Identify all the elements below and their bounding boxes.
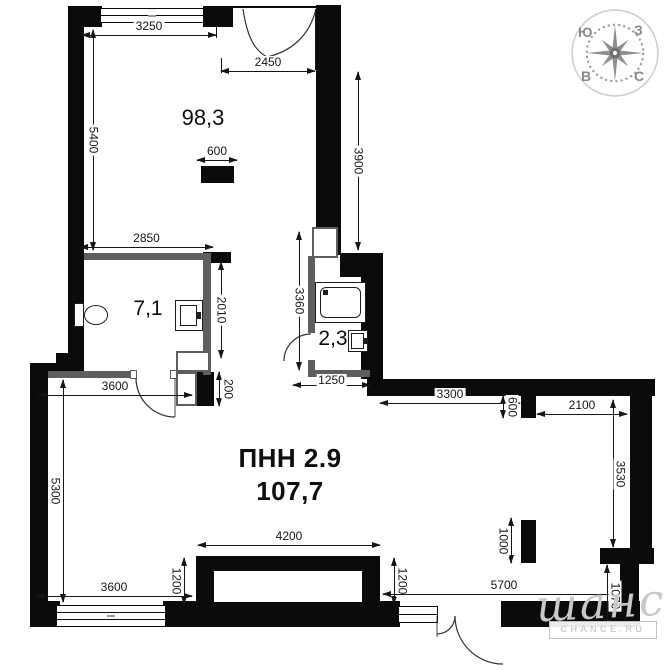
dimension-arrow [382, 591, 391, 597]
dimension-arrow [37, 392, 46, 398]
balcony-interior [214, 571, 362, 602]
niche [176, 351, 210, 372]
dimension-label: 200 [222, 377, 235, 401]
dimension-arrow [81, 32, 90, 38]
room-area-living: 98,3 [163, 105, 243, 131]
compass-letter-west: З [634, 22, 643, 38]
dimension-label: 3900 [352, 146, 365, 177]
dimension-arrow [391, 596, 397, 605]
window [398, 606, 438, 623]
duct [312, 227, 338, 258]
column [197, 372, 214, 406]
compass-letter-south: Ю [578, 24, 592, 40]
dimension-label: 600 [506, 395, 519, 419]
dimension-arrow [196, 157, 205, 163]
dimension-arrow [296, 231, 302, 240]
wall [203, 6, 233, 27]
dimension-arrow [218, 350, 224, 359]
drain-icon [323, 290, 328, 295]
floor-plan: 98,3 7,1 2,3 ПНН 2.9 107,7 3250245054003… [0, 0, 670, 670]
partition [84, 253, 206, 260]
entrance-door-arc [267, 9, 316, 57]
toilet-icon [74, 303, 84, 327]
column [201, 166, 234, 183]
dimension-label: 1000 [497, 525, 510, 556]
dimension-arrow [208, 32, 217, 38]
dimension-label: 3300 [435, 388, 466, 401]
dimension-label: 600 [205, 145, 229, 158]
dimension-label: 1200 [396, 566, 409, 597]
dimension-label: 3360 [293, 286, 306, 317]
dimension-arrow [181, 557, 187, 566]
dimension-label: 2010 [215, 295, 228, 326]
dimension-arrow [610, 399, 616, 408]
dimension-arrow [292, 382, 301, 388]
wall [600, 548, 654, 564]
dimension-label: 1250 [316, 374, 347, 387]
extension-line [315, 9, 316, 70]
main-room-area: 107,7 [195, 476, 385, 507]
faucet-icon [196, 312, 201, 319]
toilet-icon [84, 305, 108, 325]
door-jamb [130, 370, 137, 379]
dimension-arrow [355, 242, 361, 251]
dimension-arrow [610, 539, 616, 548]
dimension-label: 5300 [49, 476, 62, 507]
compass-star-icon [570, 8, 660, 98]
dimension-label: 3600 [99, 581, 130, 594]
window [56, 605, 166, 627]
dimension-line [198, 545, 380, 546]
wall [56, 353, 84, 373]
room-area-wc: 7,1 [118, 297, 178, 321]
dimension-arrow [379, 400, 388, 406]
dimension-label: 3600 [100, 380, 131, 393]
dimension-line [82, 35, 216, 36]
partition [308, 256, 315, 333]
dimension-arrow [355, 71, 361, 80]
dimension-arrow [508, 517, 514, 526]
wall [30, 370, 48, 606]
faucet-icon [363, 338, 367, 344]
dimension-arrow [229, 157, 238, 163]
dimension-arrow [35, 593, 44, 599]
dimension-line [221, 71, 315, 72]
dimension-label: 5700 [489, 579, 520, 592]
wc-door-arc [136, 378, 175, 417]
dimension-label: 3250 [134, 20, 165, 33]
dimension-arrow [79, 244, 88, 250]
dimension-label: 1200 [170, 566, 183, 597]
dimension-label: 5400 [87, 125, 100, 156]
niche [176, 372, 197, 406]
dimension-arrow [90, 29, 96, 38]
dimension-arrow [391, 557, 397, 566]
dimension-line [36, 596, 192, 597]
compass-letter-east: В [581, 68, 591, 84]
room-area-bath: 2,3 [305, 327, 361, 351]
column [521, 396, 536, 418]
dimension-line [380, 403, 520, 404]
exit-door-arc [455, 616, 503, 664]
compass-rose: Ю З В С [570, 8, 660, 98]
dimension-arrow [218, 261, 224, 270]
watermark-site: CHANCE.RU [549, 621, 657, 639]
dimension-arrow [184, 392, 193, 398]
dimension-arrow [362, 382, 371, 388]
dimension-line [80, 247, 213, 248]
dimension-arrow [220, 68, 229, 74]
sink-icon [180, 305, 197, 326]
dimension-arrow [197, 542, 206, 548]
main-room-name: ПНН 2.9 [195, 443, 385, 474]
dimension-label: 2450 [253, 56, 284, 69]
dimension-label: 2850 [131, 232, 162, 245]
dimension-arrow [619, 411, 628, 417]
wall [630, 388, 652, 548]
dimension-arrow [184, 593, 193, 599]
dimension-arrow [604, 564, 610, 573]
dimension-arrow [307, 68, 316, 74]
dimension-line [38, 395, 192, 396]
dimension-arrow [60, 379, 66, 388]
wall [231, 6, 318, 8]
dimension-arrow [205, 244, 214, 250]
dimension-arrow [372, 542, 381, 548]
dimension-arrow [296, 362, 302, 371]
dimension-label: 2100 [567, 399, 598, 412]
dimension-label: 4200 [274, 530, 305, 543]
partition [48, 371, 136, 378]
compass-letter-north: С [634, 68, 644, 84]
wall [367, 379, 655, 396]
exit-door-arc [437, 616, 455, 634]
entrance-door-arc [243, 9, 267, 57]
dimension-label: 3530 [614, 458, 627, 489]
dimension-line [63, 380, 64, 602]
wall [316, 5, 341, 255]
column [521, 520, 536, 563]
dimension-arrow [536, 411, 545, 417]
